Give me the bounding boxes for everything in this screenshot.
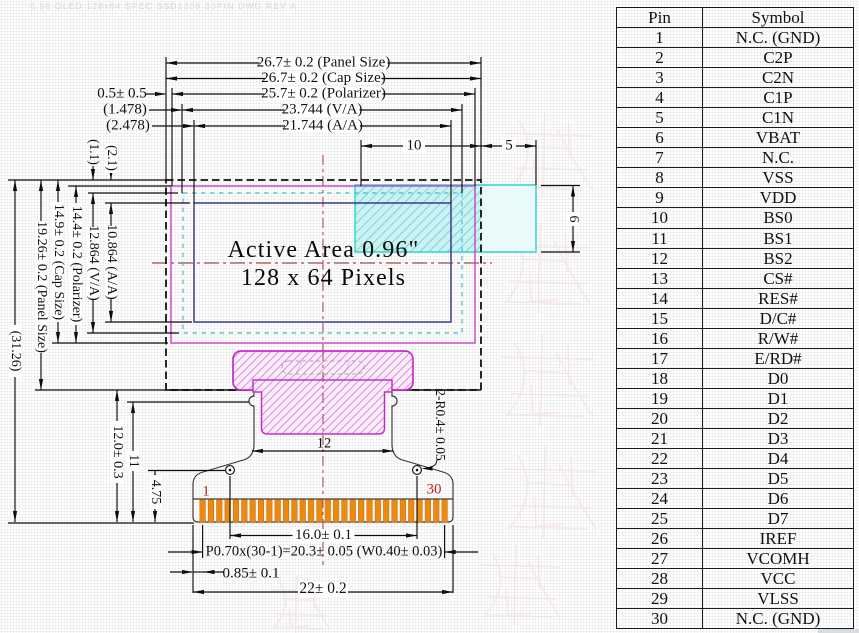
- svg-text:(2.478): (2.478): [106, 117, 150, 133]
- svg-text:12.864 (V/A): 12.864 (V/A): [86, 225, 101, 301]
- svg-text:6: 6: [566, 216, 581, 223]
- svg-text:128 x 64 Pixels: 128 x 64 Pixels: [241, 265, 406, 291]
- svg-text:0.5± 0.5: 0.5± 0.5: [97, 85, 146, 101]
- svg-text:5: 5: [505, 137, 513, 153]
- svg-text:Active Area 0.96": Active Area 0.96": [228, 237, 420, 263]
- svg-text:22± 0.2: 22± 0.2: [299, 580, 346, 597]
- svg-text:1: 1: [202, 483, 210, 499]
- svg-text:0.85± 0.1: 0.85± 0.1: [223, 565, 280, 581]
- svg-text:4.75: 4.75: [148, 480, 163, 505]
- svg-text:14.9± 0.2 (Cap Size): 14.9± 0.2 (Cap Size): [51, 204, 66, 321]
- svg-text:26.7± 0.2 (Panel Size): 26.7± 0.2 (Panel Size): [257, 54, 391, 70]
- svg-text:25.7± 0.2 (Polarizer): 25.7± 0.2 (Polarizer): [261, 85, 386, 101]
- svg-text:12.0± 0.3: 12.0± 0.3: [110, 425, 125, 478]
- svg-text:26.7± 0.2 (Cap Size): 26.7± 0.2 (Cap Size): [261, 70, 385, 86]
- svg-text:30: 30: [427, 481, 442, 497]
- svg-text:(2.1): (2.1): [105, 145, 120, 171]
- svg-text:11: 11: [126, 454, 141, 467]
- svg-text:12: 12: [317, 435, 332, 451]
- svg-text:21.744 (A/A): 21.744 (A/A): [282, 117, 363, 133]
- svg-text:(1.478): (1.478): [103, 101, 147, 117]
- svg-text:14.4± 0.2 (Polarizer): 14.4± 0.2 (Polarizer): [69, 206, 84, 323]
- svg-text:10: 10: [407, 137, 422, 153]
- svg-text:23.744 (V/A): 23.744 (V/A): [282, 101, 363, 117]
- svg-text:2-R0.4± 0.05: 2-R0.4± 0.05: [433, 389, 448, 461]
- svg-text:16.0± 0.1: 16.0± 0.1: [295, 527, 352, 543]
- svg-text:(1.1): (1.1): [87, 139, 102, 165]
- svg-text:(31.26): (31.26): [8, 331, 23, 372]
- svg-text:10.864 (A/A): 10.864 (A/A): [104, 224, 119, 300]
- svg-text:19.26± 0.2 (Panel Size): 19.26± 0.2 (Panel Size): [34, 221, 49, 353]
- svg-text:P0.70x(30-1)=20.3± 0.05 (W0.40: P0.70x(30-1)=20.3± 0.05 (W0.40± 0.03): [206, 543, 443, 559]
